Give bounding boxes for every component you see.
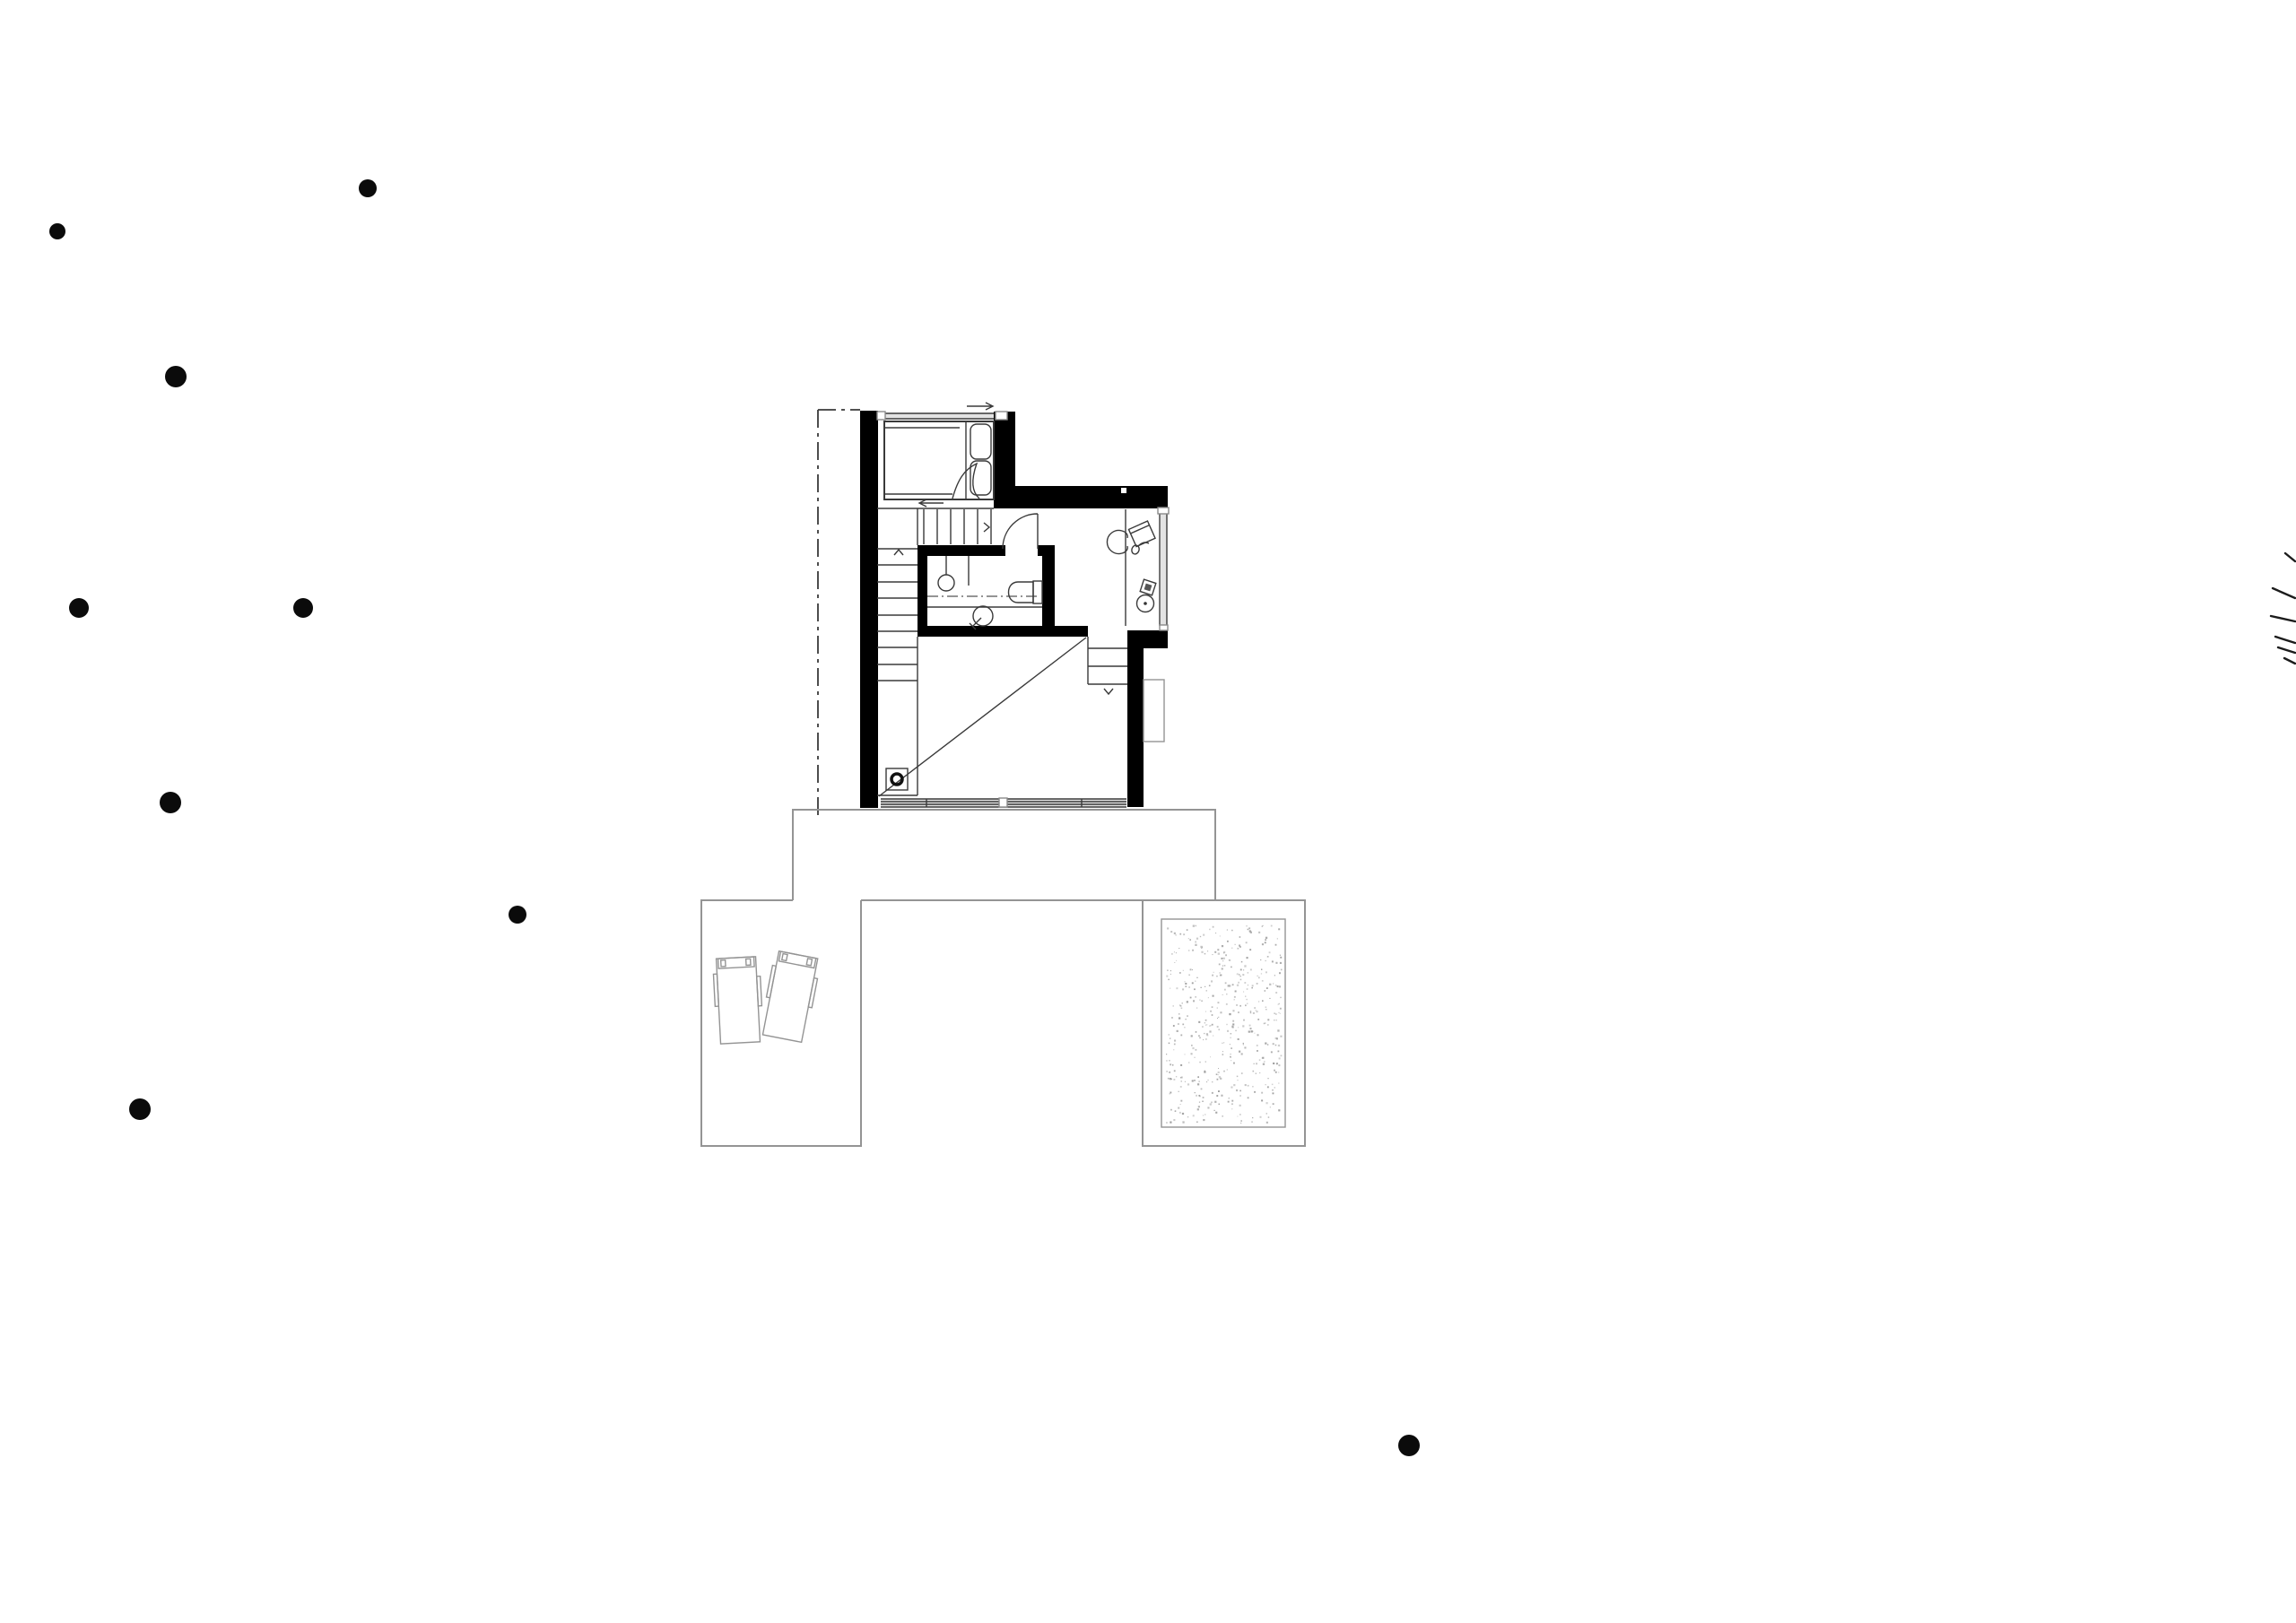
sun-ray: [2271, 616, 2295, 621]
desk-chair: [1107, 531, 1127, 554]
site-dot: [165, 366, 187, 387]
stair-treads-hall: [924, 509, 991, 544]
sun-ray: [2285, 553, 2295, 561]
void-room: [877, 637, 1086, 796]
pool: [1143, 900, 1305, 1146]
stair-treads-right-flight: [1088, 637, 1127, 684]
wall-bath-right: [1042, 545, 1055, 626]
wall-top: [1015, 486, 1168, 508]
site-boundary-line: [818, 410, 860, 820]
pool-basin-outline: [1161, 919, 1285, 1127]
bedroom: [884, 421, 994, 499]
flue: [886, 768, 908, 790]
sink: [938, 575, 954, 591]
site-dot: [509, 906, 526, 924]
site-dot: [129, 1098, 151, 1120]
wall-bath-bottom: [918, 626, 1088, 637]
wall-notch: [1121, 488, 1126, 493]
void-diagonal: [879, 638, 1086, 796]
upper-terrace-outline: [793, 810, 1215, 900]
terraces: [701, 810, 1305, 1146]
desk-object: [1140, 579, 1156, 595]
sun-rays-sketch: [2271, 553, 2295, 664]
stair-treads-left-flight: [877, 549, 918, 681]
sun-ray: [2284, 658, 2295, 664]
wall-right-lower: [1127, 630, 1144, 807]
window-right: [1158, 508, 1169, 630]
site-dot: [160, 792, 181, 813]
pool-stipple-texture: [1166, 925, 1283, 1124]
sun-ray: [2278, 647, 2295, 653]
bathroom-door: [1003, 514, 1038, 549]
wall-bath-top: [918, 545, 1005, 556]
sun-ray: [2275, 637, 2295, 643]
walls: [860, 411, 1168, 808]
site-dot: [1398, 1435, 1420, 1456]
wall-bedroom-right: [994, 412, 1015, 508]
bed-lines: [884, 421, 966, 499]
window-bottom: [881, 798, 1126, 807]
sun-ray: [2273, 588, 2295, 598]
lounger-terrace-outline: [701, 900, 861, 1146]
building: [860, 403, 1169, 808]
stool: [1137, 595, 1154, 612]
floor-plan-sheet: [0, 0, 2296, 1623]
pool-deck-outline: [1143, 900, 1305, 1146]
site-dot: [293, 598, 313, 618]
stair-landing-edges: [877, 508, 994, 545]
site-dot: [359, 179, 377, 197]
site-dot: [49, 223, 65, 239]
floor-plan-drawing: [0, 0, 2296, 1623]
sun-lounger: [713, 957, 764, 1045]
pillow: [970, 424, 991, 459]
toilet: [1009, 581, 1043, 603]
mouse: [1131, 542, 1149, 555]
sun-lounger: [760, 950, 822, 1043]
site-dots: [49, 179, 1420, 1456]
wall-bath-left: [918, 554, 927, 626]
wall-left: [860, 411, 878, 808]
site-dot: [69, 598, 89, 618]
study-area: [1107, 509, 1155, 626]
exterior-planter: [1144, 680, 1164, 742]
window-top: [877, 412, 1007, 420]
